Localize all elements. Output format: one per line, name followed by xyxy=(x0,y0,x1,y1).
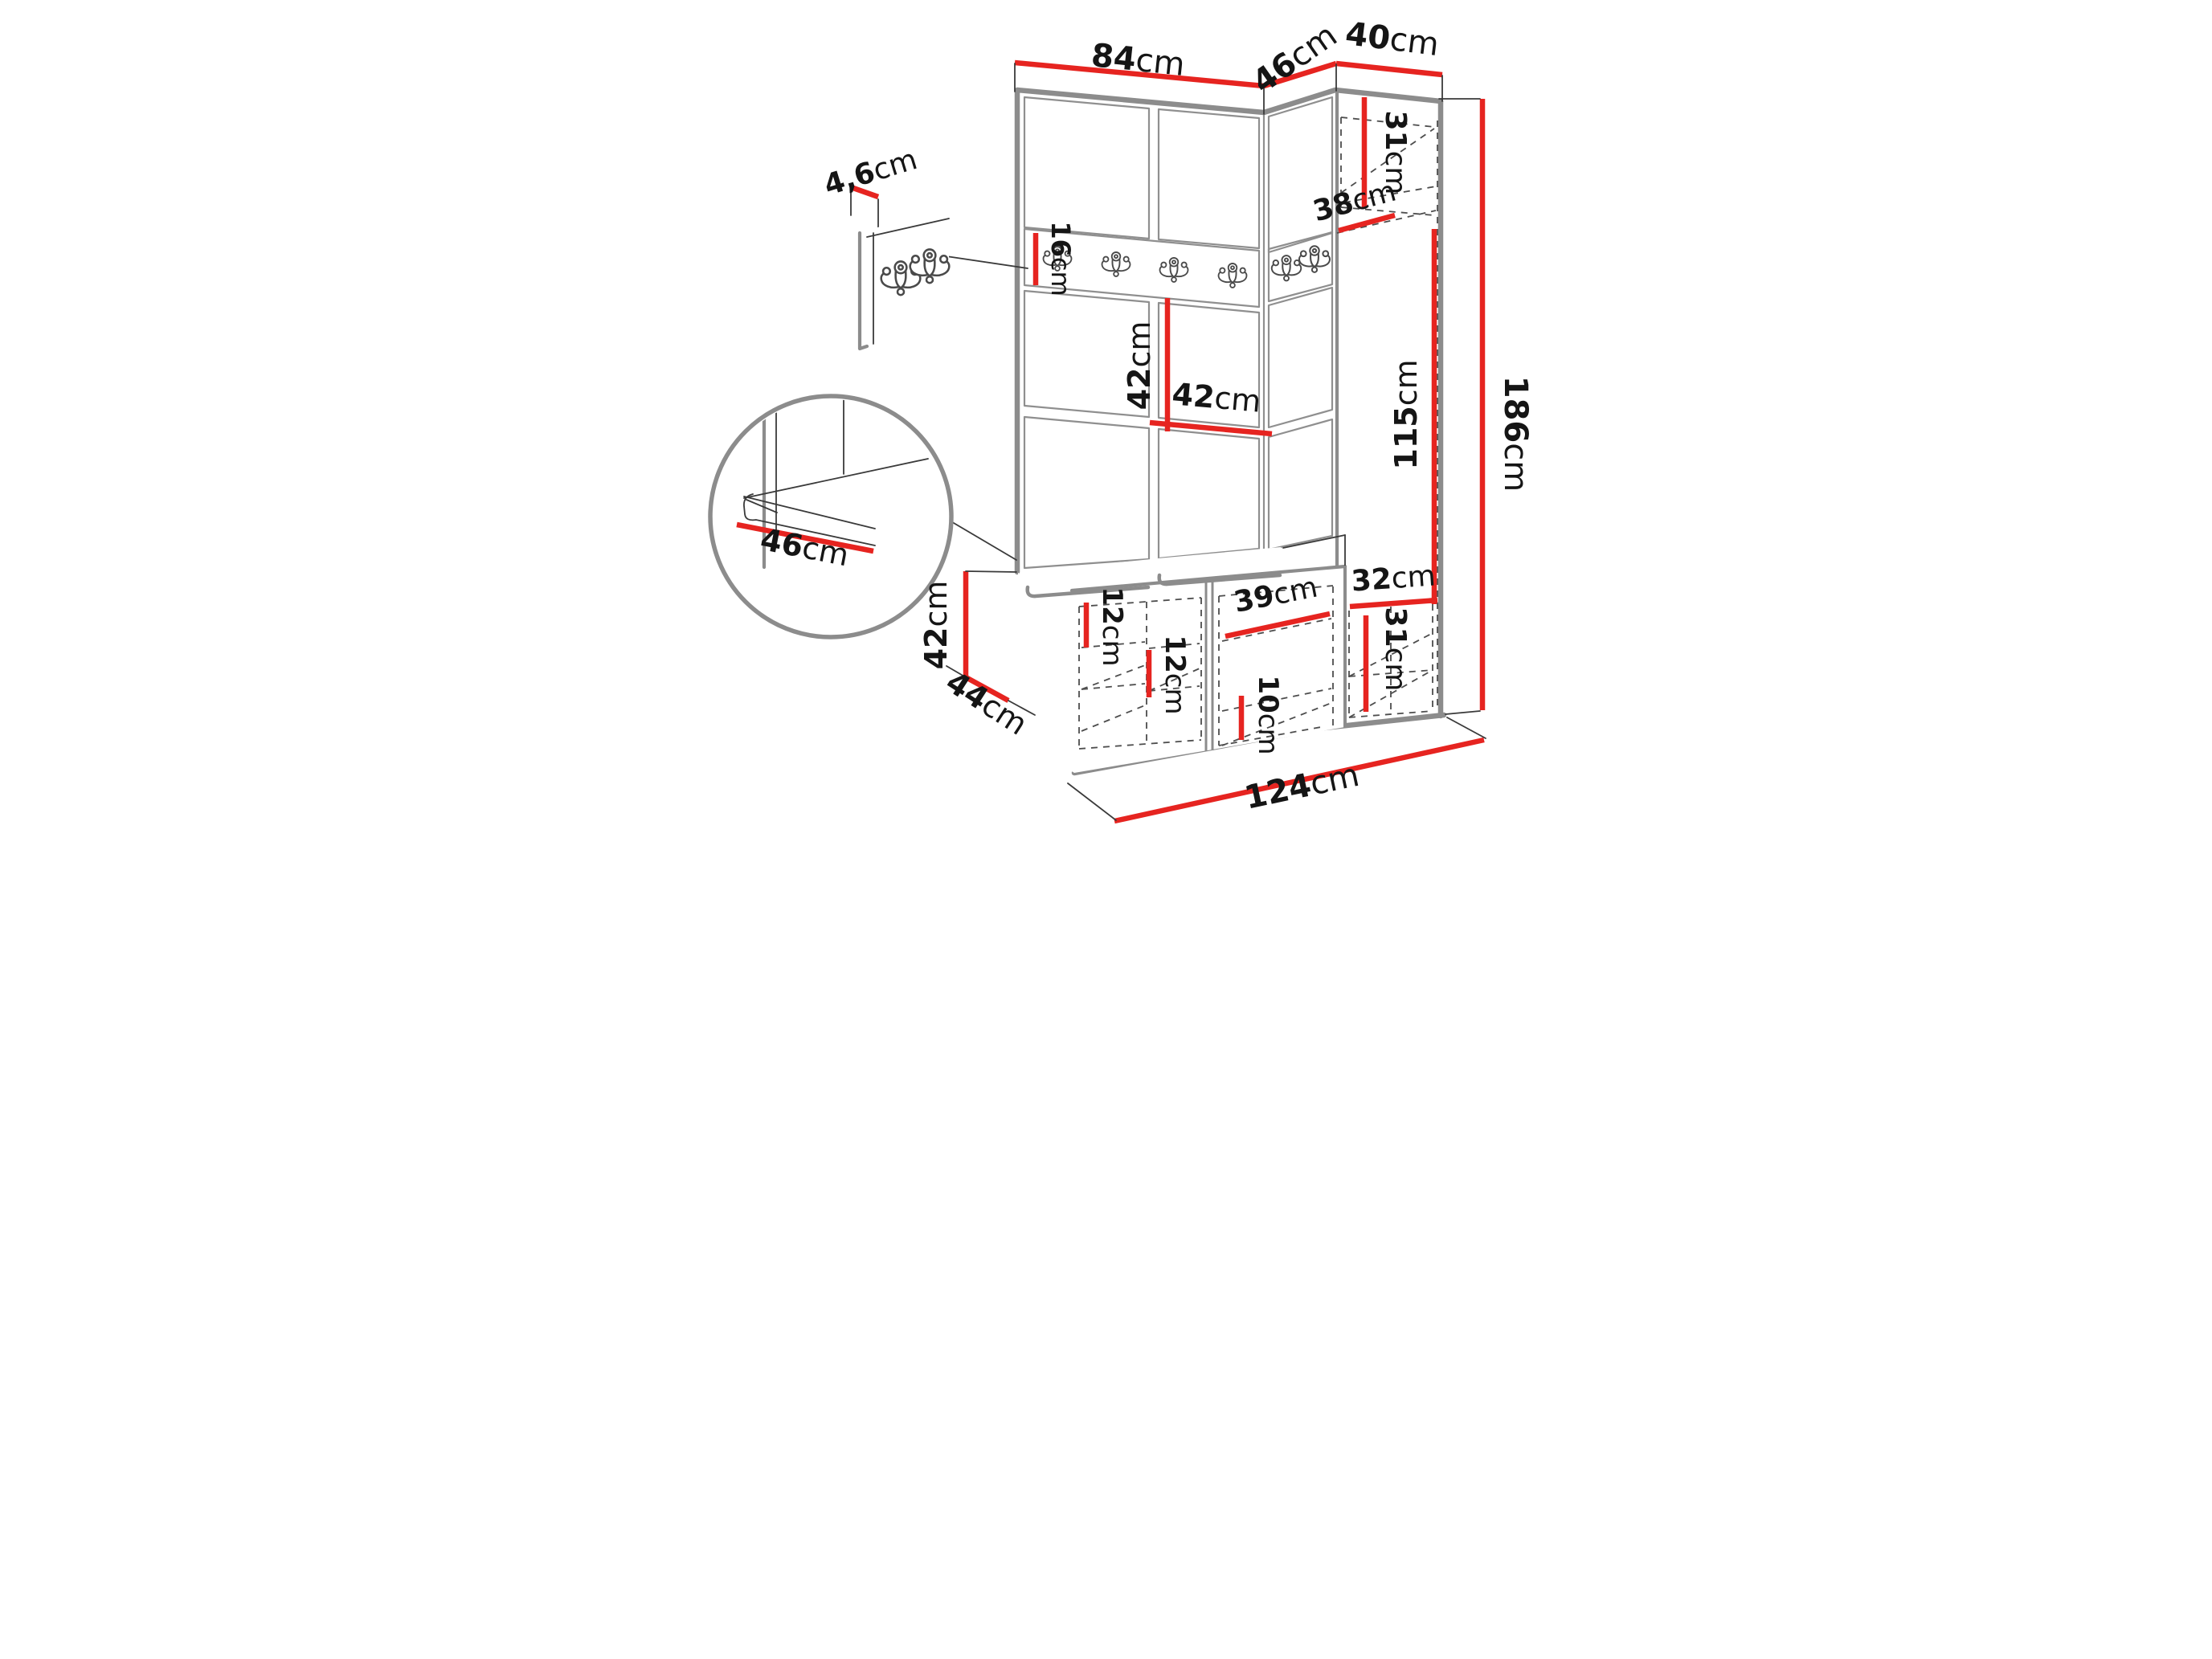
dim-bottom-width-32: 32cm xyxy=(1350,559,1437,598)
wall-panel-detail xyxy=(860,211,949,349)
diagram-page: 84cm 46cm 40cm 4,6cm 31cm 38cm 16cm 42cm… xyxy=(554,0,1659,829)
dim-bench-height-42: 42cm xyxy=(918,581,954,670)
bench-side-face xyxy=(1016,573,1074,773)
dim-shelf-gap-12-a: 12cm xyxy=(1096,586,1128,666)
dim-corner-width-46: 46cm xyxy=(1245,17,1343,101)
dim-right-width-40: 40cm xyxy=(1343,15,1440,63)
dim-open-height-115: 115cm xyxy=(1388,359,1424,469)
dim-rail-height-16: 16cm xyxy=(1045,221,1076,296)
dim-shoe-shelf-gap-10: 10cm xyxy=(1252,675,1284,754)
dim-total-height-186: 186cm xyxy=(1497,376,1534,492)
dim-shelf-gap-12-b: 12cm xyxy=(1159,635,1191,714)
furniture-dimension-diagram: 84cm 46cm 40cm 4,6cm 31cm 38cm 16cm 42cm… xyxy=(554,0,1659,829)
dim-total-width-124: 124cm xyxy=(1241,757,1362,817)
seat-detail-circle xyxy=(710,392,951,637)
dim-panel-tile-height-42: 42cm xyxy=(1122,321,1157,411)
dim-top-width-84: 84cm xyxy=(1089,37,1186,84)
dim-bottom-cabinet-height-31: 31cm xyxy=(1379,607,1412,692)
